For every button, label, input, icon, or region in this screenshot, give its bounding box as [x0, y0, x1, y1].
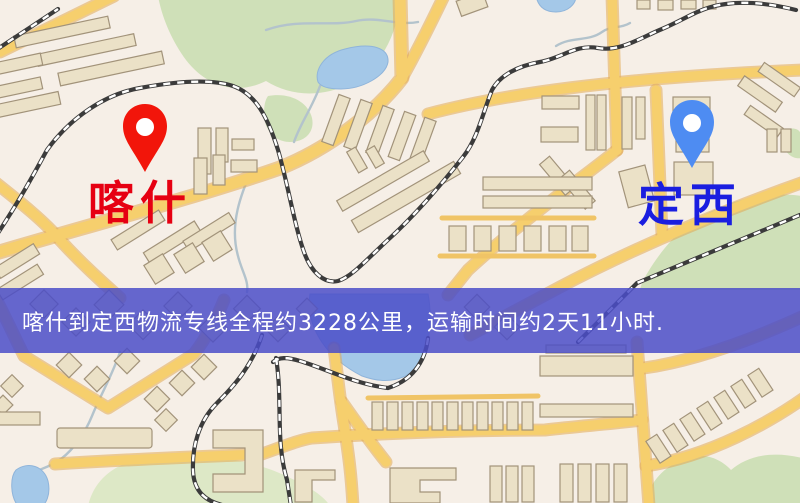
destination-label: 定西	[638, 178, 742, 232]
banner-text: 喀什到定西物流专线全程约3228公里，运输时间约2天11小时.	[22, 311, 664, 336]
red-pin-hole	[136, 118, 154, 136]
origin-label: 喀什	[88, 176, 192, 230]
lake-bottom-left	[12, 466, 49, 503]
map-screenshot: 喀什到定西物流专线全程约3228公里，运输时间约2天11小时. 喀什 定西	[0, 0, 800, 503]
blue-pin-hole	[683, 114, 701, 132]
map-canvas: 喀什到定西物流专线全程约3228公里，运输时间约2天11小时. 喀什 定西	[0, 0, 800, 503]
route-banner: 喀什到定西物流专线全程约3228公里，运输时间约2天11小时.	[0, 288, 800, 353]
